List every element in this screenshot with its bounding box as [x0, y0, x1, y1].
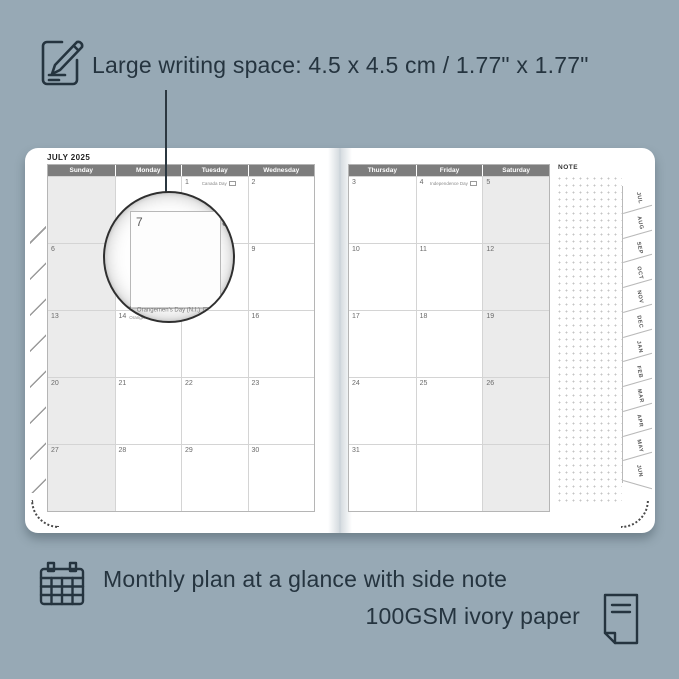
day-cell: 24	[349, 377, 416, 444]
magnified-writing-space	[130, 211, 221, 309]
calendar-grid-icon	[38, 560, 86, 608]
month-title: JULY 2025	[47, 153, 90, 162]
day-cell: 18	[416, 310, 483, 377]
feature-bottom-text: Monthly plan at a glance with side note	[103, 566, 507, 593]
month-tab-aug: AUG	[623, 211, 653, 236]
note-dot-grid	[556, 175, 622, 503]
month-tab-jun: JUN	[623, 458, 653, 483]
day-cell: 15	[181, 310, 248, 377]
magnified-day-number: 7	[136, 215, 143, 229]
product-image: Large writing space: 4.5 x 4.5 cm / 1.77…	[0, 0, 679, 679]
feature-paper-text: 100GSM ivory paper	[365, 603, 580, 630]
month-tab-apr: APR	[623, 409, 653, 434]
stitch-corner-right	[621, 500, 649, 528]
month-tab-jul: JUL	[623, 186, 653, 211]
magnifier-circle: 7 8 4 Orangemen's Day (N.I.)	[103, 191, 235, 323]
weekday-header: Wednesday	[248, 165, 315, 176]
planner-spread: JULY 2025 Sunday Monday Tuesday Wednesda…	[25, 148, 655, 533]
note-label: NOTE	[558, 164, 578, 171]
month-tab-strip: JUL AUG SEP OCT NOV DEC JAN FEB MAR APR …	[622, 186, 653, 483]
pencil-note-icon	[38, 36, 88, 88]
day-cell: 9	[248, 243, 315, 310]
day-cell: 19	[482, 310, 549, 377]
day-cell: 11	[416, 243, 483, 310]
day-cell: 23	[248, 377, 315, 444]
feature-top-text: Large writing space: 4.5 x 4.5 cm / 1.77…	[92, 52, 589, 79]
weekday-header: Thursday	[349, 165, 416, 176]
weekday-header: Tuesday	[181, 165, 248, 176]
magnified-day-number: 8	[222, 215, 229, 229]
month-tab-nov: NOV	[623, 285, 653, 310]
day-cell: 3	[349, 176, 416, 243]
day-cell	[482, 444, 549, 511]
month-tab-dec: DEC	[623, 310, 653, 335]
day-cell: 12	[482, 243, 549, 310]
day-cell: 26	[482, 377, 549, 444]
day-cell: 16	[248, 310, 315, 377]
day-cell: 30	[248, 444, 315, 511]
day-cell: 28	[115, 444, 182, 511]
page-edge-hatching	[30, 208, 46, 493]
magnified-holiday-row: 4 Orangemen's Day (N.I.)	[105, 305, 233, 315]
weekday-header: Saturday	[482, 165, 549, 176]
day-cell: 5	[482, 176, 549, 243]
day-cell	[416, 444, 483, 511]
day-cell: 17	[349, 310, 416, 377]
day-cell: 29	[181, 444, 248, 511]
day-cell: 4Independence Day	[416, 176, 483, 243]
callout-pointer-line	[165, 90, 167, 194]
weekday-header: Monday	[115, 165, 182, 176]
day-cell: 13	[48, 310, 115, 377]
day-cell: 20	[48, 377, 115, 444]
day-cell: 21	[115, 377, 182, 444]
month-tab-feb: FEB	[623, 359, 653, 384]
month-tab-mar: MAR	[623, 384, 653, 409]
paper-sheet-icon	[600, 592, 642, 650]
day-cell: 27	[48, 444, 115, 511]
right-month-grid: Thursday Friday Saturday 3 4Independence…	[348, 164, 550, 512]
month-tab-oct: OCT	[623, 260, 653, 285]
day-cell: 25	[416, 377, 483, 444]
day-cell: 22	[181, 377, 248, 444]
day-cell: 31	[349, 444, 416, 511]
day-cell: 2	[248, 176, 315, 243]
weekday-header: Sunday	[48, 165, 115, 176]
weekday-header: Friday	[416, 165, 483, 176]
day-cell	[48, 176, 115, 243]
day-cell: 10	[349, 243, 416, 310]
